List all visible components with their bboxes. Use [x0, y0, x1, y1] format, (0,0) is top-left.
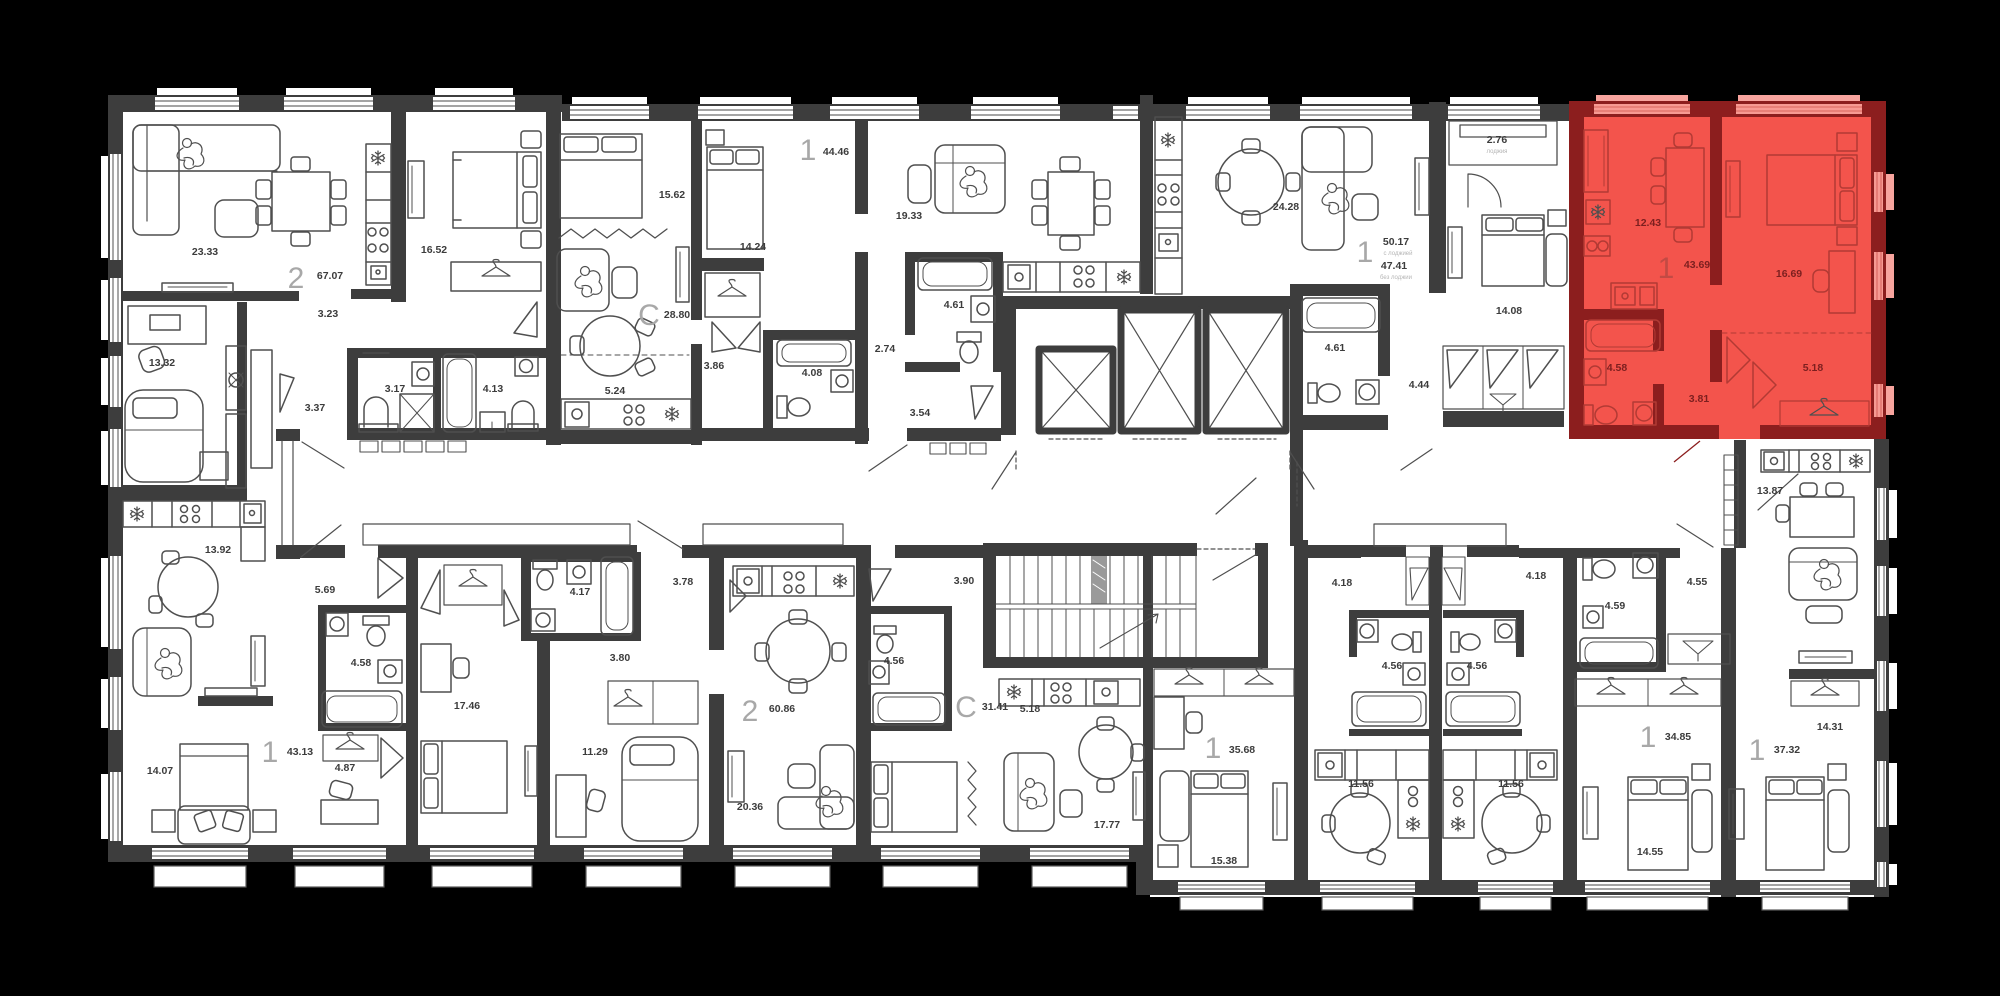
svg-text:14.08: 14.08	[1496, 305, 1522, 317]
svg-text:3.81: 3.81	[1689, 393, 1710, 405]
svg-text:13.92: 13.92	[205, 544, 231, 556]
svg-text:1: 1	[1658, 252, 1675, 285]
svg-text:43.13: 43.13	[287, 746, 313, 758]
svg-text:5.18: 5.18	[1020, 703, 1041, 715]
svg-text:3.86: 3.86	[704, 360, 725, 372]
svg-text:20.36: 20.36	[737, 801, 763, 813]
svg-text:1: 1	[1749, 734, 1766, 767]
svg-text:15.38: 15.38	[1211, 855, 1237, 867]
svg-text:3.17: 3.17	[385, 383, 406, 395]
svg-text:C: C	[638, 299, 660, 332]
svg-text:4.18: 4.18	[1332, 577, 1353, 589]
svg-text:с лоджией: с лоджией	[1384, 250, 1413, 257]
svg-text:16.52: 16.52	[421, 244, 447, 256]
svg-text:4.58: 4.58	[351, 657, 372, 669]
svg-text:4.56: 4.56	[1382, 660, 1403, 672]
svg-text:4.87: 4.87	[335, 762, 356, 774]
svg-text:5.24: 5.24	[605, 385, 626, 397]
svg-text:4.56: 4.56	[884, 655, 905, 667]
svg-text:3.54: 3.54	[910, 407, 931, 419]
svg-text:C: C	[955, 691, 977, 724]
svg-text:3.23: 3.23	[318, 308, 339, 320]
svg-text:3.90: 3.90	[954, 575, 975, 587]
svg-text:37.32: 37.32	[1774, 744, 1800, 756]
svg-text:14.55: 14.55	[1637, 846, 1663, 858]
svg-text:60.86: 60.86	[769, 703, 795, 715]
svg-text:4.17: 4.17	[570, 586, 591, 598]
svg-text:1: 1	[1640, 721, 1657, 754]
svg-text:14.31: 14.31	[1817, 721, 1843, 733]
svg-text:28.80: 28.80	[664, 309, 690, 321]
svg-text:19.33: 19.33	[896, 210, 922, 222]
svg-text:2.76: 2.76	[1487, 134, 1508, 146]
svg-text:4.18: 4.18	[1526, 570, 1547, 582]
svg-text:3.80: 3.80	[610, 652, 631, 664]
svg-text:50.17: 50.17	[1383, 236, 1409, 248]
svg-text:44.46: 44.46	[823, 146, 849, 158]
svg-text:13.87: 13.87	[1757, 485, 1783, 497]
svg-text:15.62: 15.62	[659, 189, 685, 201]
svg-text:4.61: 4.61	[944, 299, 965, 311]
svg-text:4.61: 4.61	[1325, 342, 1346, 354]
svg-text:без лоджии: без лоджии	[1380, 275, 1412, 281]
svg-text:11.29: 11.29	[582, 746, 608, 758]
svg-text:31.41: 31.41	[982, 701, 1008, 713]
svg-text:34.85: 34.85	[1665, 731, 1691, 743]
svg-text:4.13: 4.13	[483, 383, 504, 395]
svg-text:11.56: 11.56	[1498, 778, 1524, 790]
svg-text:24.28: 24.28	[1273, 201, 1299, 213]
svg-text:1: 1	[1205, 732, 1222, 765]
svg-text:47.41: 47.41	[1381, 260, 1407, 272]
svg-text:12.43: 12.43	[1635, 217, 1661, 229]
svg-text:17.77: 17.77	[1094, 819, 1120, 831]
svg-text:4.55: 4.55	[1687, 576, 1708, 588]
svg-text:2: 2	[742, 695, 759, 728]
svg-text:11.56: 11.56	[1348, 778, 1374, 790]
svg-text:3.37: 3.37	[305, 402, 326, 414]
svg-text:1: 1	[800, 134, 817, 167]
svg-text:17.46: 17.46	[454, 700, 480, 712]
svg-text:14.24: 14.24	[740, 241, 766, 253]
svg-text:16.69: 16.69	[1776, 268, 1802, 280]
svg-text:5.18: 5.18	[1803, 362, 1824, 374]
svg-text:14.07: 14.07	[147, 765, 173, 777]
svg-text:4.59: 4.59	[1605, 600, 1626, 612]
svg-text:23.33: 23.33	[192, 246, 218, 258]
svg-text:1: 1	[262, 736, 279, 769]
svg-text:67.07: 67.07	[317, 270, 343, 282]
svg-text:4.08: 4.08	[802, 367, 823, 379]
svg-text:13.32: 13.32	[149, 357, 175, 369]
svg-text:2: 2	[288, 262, 305, 295]
svg-text:1: 1	[1357, 236, 1374, 269]
svg-text:4.58: 4.58	[1607, 362, 1628, 374]
svg-text:лоджия: лоджия	[1487, 149, 1508, 155]
svg-text:43.69: 43.69	[1684, 259, 1710, 271]
svg-text:2.74: 2.74	[875, 343, 896, 355]
svg-text:4.56: 4.56	[1467, 660, 1488, 672]
svg-text:5.69: 5.69	[315, 584, 336, 596]
svg-text:3.78: 3.78	[673, 576, 694, 588]
svg-text:4.44: 4.44	[1409, 379, 1430, 391]
svg-text:35.68: 35.68	[1229, 744, 1255, 756]
